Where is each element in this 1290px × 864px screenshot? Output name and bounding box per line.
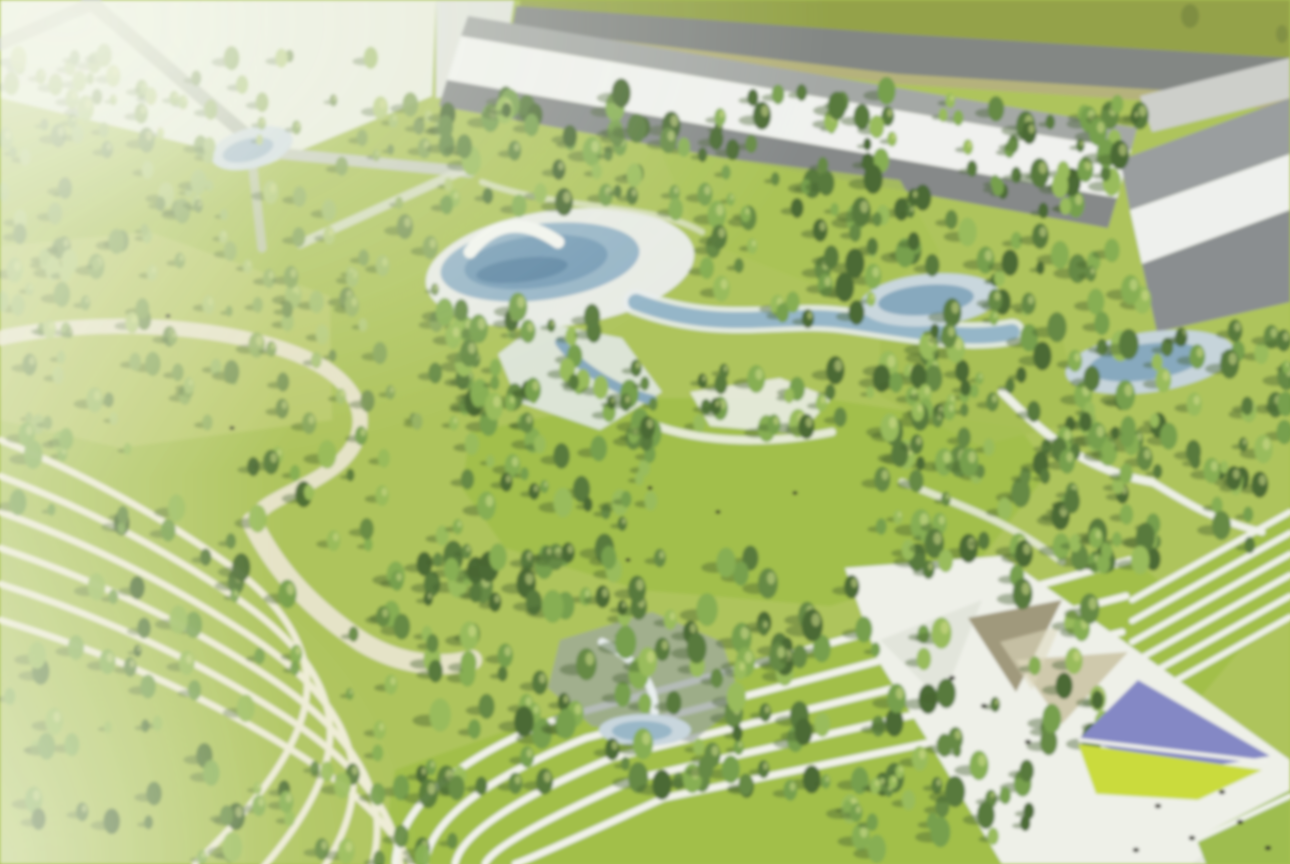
wash-layer [0, 0, 1290, 864]
scene-layer [0, 0, 1290, 864]
aerial-render-canvas [0, 0, 1290, 864]
park-aerial-rendering [0, 0, 1290, 864]
wash-veil [0, 0, 1290, 864]
